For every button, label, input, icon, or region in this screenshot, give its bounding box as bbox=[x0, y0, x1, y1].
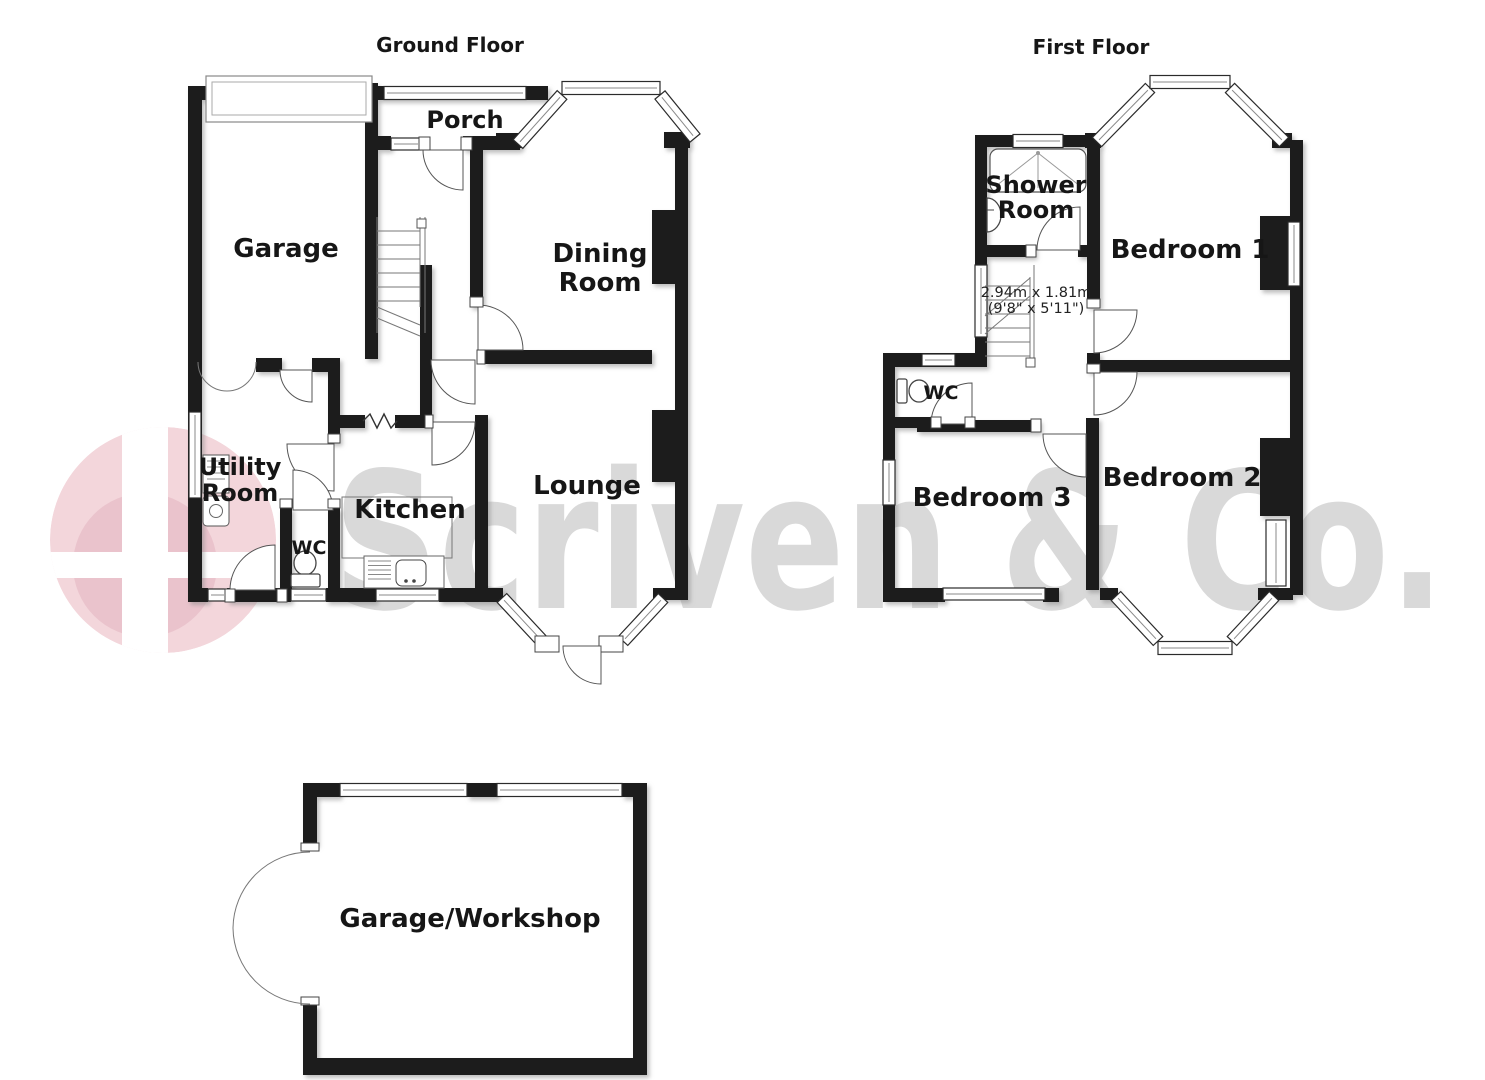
room-label-bedroom2: Bedroom 2 bbox=[1103, 463, 1262, 493]
wall bbox=[188, 588, 208, 602]
door-jamb bbox=[599, 636, 623, 652]
wall bbox=[280, 508, 292, 592]
window bbox=[1158, 642, 1232, 655]
stairs-icon bbox=[377, 217, 426, 336]
window bbox=[562, 82, 660, 95]
floorplan-drawing: Scriven & Co.Ground FloorFirst FloorGara… bbox=[0, 0, 1485, 1080]
wall bbox=[484, 350, 652, 364]
room-label-bedroom3: Bedroom 3 bbox=[913, 483, 1072, 513]
dimension-label: 2.94m x 1.81m bbox=[981, 285, 1092, 301]
garage-workshop-openings bbox=[233, 784, 622, 1006]
window bbox=[922, 354, 955, 366]
wall bbox=[470, 138, 483, 307]
door-jamb bbox=[470, 297, 483, 307]
double-door-arc bbox=[233, 852, 310, 928]
wall bbox=[328, 365, 340, 443]
door-jamb bbox=[1087, 364, 1100, 373]
wall bbox=[675, 132, 688, 600]
window bbox=[975, 265, 987, 337]
window bbox=[1150, 76, 1230, 89]
door-jamb bbox=[225, 589, 235, 602]
room-label-bedroom1: Bedroom 1 bbox=[1111, 235, 1270, 265]
room-label-lounge: Lounge bbox=[533, 471, 641, 501]
window bbox=[883, 460, 895, 505]
window bbox=[1266, 520, 1286, 586]
wall bbox=[1100, 360, 1290, 372]
floor-title-first: First Floor bbox=[1033, 35, 1150, 59]
double-door-arc bbox=[227, 362, 256, 391]
wall bbox=[188, 86, 202, 602]
wall bbox=[883, 588, 945, 602]
wall bbox=[633, 783, 647, 1075]
wall bbox=[1087, 147, 1100, 307]
room-label-kitchen: Kitchen bbox=[354, 495, 466, 525]
dimension-label: (9'8" x 5'11") bbox=[988, 301, 1085, 317]
door-jamb bbox=[419, 137, 430, 150]
door-jamb bbox=[1031, 419, 1041, 432]
window bbox=[376, 589, 439, 601]
room-label-shower: Room bbox=[998, 196, 1074, 224]
door-jamb bbox=[425, 415, 433, 428]
door-swing bbox=[1094, 372, 1137, 415]
wall bbox=[303, 1058, 647, 1075]
wall bbox=[340, 415, 365, 428]
room-label-wc-ground: WC bbox=[292, 537, 327, 559]
wall bbox=[303, 783, 317, 845]
room-label-porch: Porch bbox=[426, 106, 503, 134]
watermark: Scriven & Co. bbox=[40, 400, 1445, 690]
door-jamb bbox=[461, 137, 472, 150]
door-swing bbox=[563, 646, 601, 684]
door-swing bbox=[280, 370, 312, 402]
door-jamb bbox=[931, 417, 941, 428]
room-label-dining: Dining bbox=[552, 239, 647, 269]
window bbox=[1013, 135, 1063, 148]
wall bbox=[365, 83, 378, 359]
window bbox=[497, 784, 622, 797]
room-label-shower: Shower bbox=[985, 171, 1086, 199]
door-swing bbox=[1094, 310, 1137, 353]
door-jamb bbox=[1026, 245, 1036, 257]
watermark-logo-icon bbox=[40, 400, 290, 690]
door-swing bbox=[478, 305, 523, 350]
wall bbox=[1290, 140, 1303, 595]
door-jamb bbox=[477, 350, 485, 364]
door-swing bbox=[423, 150, 463, 190]
double-door-arc bbox=[198, 362, 227, 391]
floorplan-page: Scriven & Co.Ground FloorFirst FloorGara… bbox=[0, 0, 1485, 1080]
open-archway-zigzag bbox=[363, 414, 397, 428]
wall bbox=[326, 588, 376, 602]
window bbox=[1288, 222, 1300, 286]
room-label-dining: Room bbox=[559, 268, 642, 298]
wall bbox=[467, 783, 497, 797]
wall bbox=[652, 410, 688, 482]
door-jamb bbox=[280, 499, 292, 508]
door-jamb bbox=[328, 434, 340, 443]
door-swing bbox=[431, 360, 475, 404]
window bbox=[391, 138, 421, 150]
door-jamb bbox=[965, 417, 975, 428]
room-label-utility: Utility bbox=[199, 453, 282, 481]
door-jamb bbox=[328, 499, 340, 508]
window bbox=[1092, 83, 1154, 146]
window bbox=[291, 589, 326, 601]
door-jamb bbox=[535, 636, 559, 652]
room-label-utility: Room bbox=[202, 479, 278, 507]
room-label-wc-first: WC bbox=[924, 382, 959, 404]
wall bbox=[420, 265, 432, 417]
door-jamb bbox=[301, 843, 319, 851]
wall bbox=[377, 136, 391, 150]
wall bbox=[256, 358, 282, 372]
floor-title-ground: Ground Floor bbox=[376, 33, 524, 57]
garage-door bbox=[206, 76, 372, 122]
wall bbox=[328, 508, 340, 592]
window bbox=[208, 589, 227, 601]
wall bbox=[1086, 418, 1099, 590]
wall bbox=[475, 415, 488, 592]
window bbox=[943, 588, 1045, 600]
door-jamb bbox=[277, 589, 287, 602]
room-label-garage: Garage bbox=[233, 234, 339, 264]
double-door-arc bbox=[233, 928, 310, 1004]
wall bbox=[1260, 438, 1303, 516]
window bbox=[340, 784, 467, 797]
window bbox=[1225, 83, 1288, 146]
wall bbox=[652, 210, 688, 284]
wall bbox=[439, 588, 503, 602]
window bbox=[384, 87, 526, 100]
room-label-garage-workshop: Garage/Workshop bbox=[339, 904, 600, 934]
kitchen-sink-icon bbox=[364, 556, 444, 588]
